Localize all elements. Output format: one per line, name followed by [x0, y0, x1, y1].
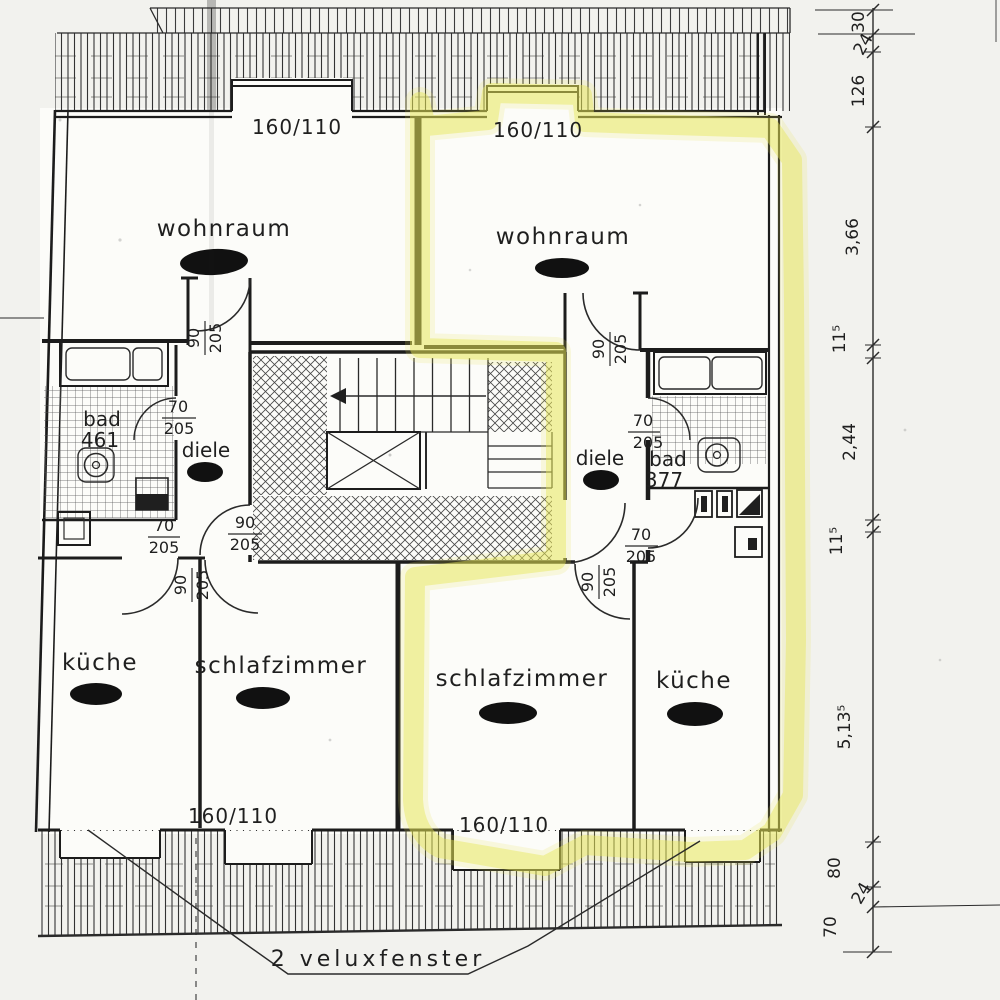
window-label-bottom-left: 160/110: [188, 804, 278, 828]
stair-landing-bottom: [253, 496, 552, 560]
door-label-left-entrance-h: 205: [230, 535, 261, 554]
svg-text:90: 90: [171, 575, 190, 595]
svg-text:90: 90: [578, 572, 597, 592]
svg-text:205: 205: [193, 570, 212, 601]
dim-label: 11⁵: [830, 325, 850, 353]
area-label-bad-left: 461: [81, 428, 119, 452]
room-label-diele-left: diele: [182, 438, 230, 462]
dim-label: 70: [821, 916, 841, 938]
room-label-kueche-right: küche: [656, 668, 732, 694]
room-label-kueche-left: küche: [62, 650, 138, 676]
dim-label: 30: [849, 11, 869, 33]
door-label-right-bad-h: 205: [633, 433, 664, 452]
dim-label: 11⁵: [827, 527, 847, 555]
dim-label: 2,44: [840, 423, 860, 461]
room-label-schlafzimmer-left: schlafzimmer: [195, 653, 368, 679]
door-label-left-kueche-w: 70: [154, 516, 174, 535]
svg-text:205: 205: [600, 567, 619, 598]
redaction-mark: [187, 462, 223, 482]
velux-note: 2 veluxfenster: [271, 947, 486, 972]
door-label-right-kueche-w: 70: [631, 525, 651, 544]
redaction-mark: [236, 687, 290, 709]
dim-label: 3,66: [843, 218, 863, 256]
floorplan-svg: 160/110 160/110 wohnraum wohnraum bad 46…: [0, 0, 1000, 1000]
window-label-bottom-right: 160/110: [459, 813, 549, 837]
redaction-mark: [535, 258, 589, 278]
room-label-wohnraum-right: wohnraum: [496, 224, 631, 250]
redaction-mark: [479, 702, 537, 724]
door-label-left-bad-w: 70: [168, 397, 188, 416]
room-label-schlafzimmer-right: schlafzimmer: [436, 666, 609, 692]
dim-label: 5,13⁵: [835, 705, 855, 750]
room-label-diele-right: diele: [576, 446, 624, 470]
door-label-left-entrance-w: 90: [235, 513, 255, 532]
redaction-mark: [583, 470, 619, 490]
redaction-mark: [667, 702, 723, 726]
door-label-left-kueche-h: 205: [149, 538, 180, 557]
door-label-left-bad-h: 205: [164, 419, 195, 438]
floorplan-scan: 160/110 160/110 wohnraum wohnraum bad 46…: [0, 0, 1000, 1000]
window-label-top-right: 160/110: [493, 118, 583, 142]
svg-text:90: 90: [589, 339, 608, 359]
stair-landing-left: [253, 356, 327, 495]
svg-text:205: 205: [206, 323, 225, 354]
room-label-wohnraum-left: wohnraum: [157, 216, 292, 242]
door-label-right-bad-w: 70: [633, 411, 653, 430]
redaction-mark: [70, 683, 122, 705]
window-label-top-left: 160/110: [252, 115, 342, 139]
dim-label: 126: [849, 75, 869, 107]
svg-text:205: 205: [611, 334, 630, 365]
dim-label: 80: [825, 857, 845, 879]
svg-text:90: 90: [184, 328, 203, 348]
door-label-right-kueche-h: 205: [626, 547, 657, 566]
area-label-bad-right: 377: [645, 468, 683, 492]
